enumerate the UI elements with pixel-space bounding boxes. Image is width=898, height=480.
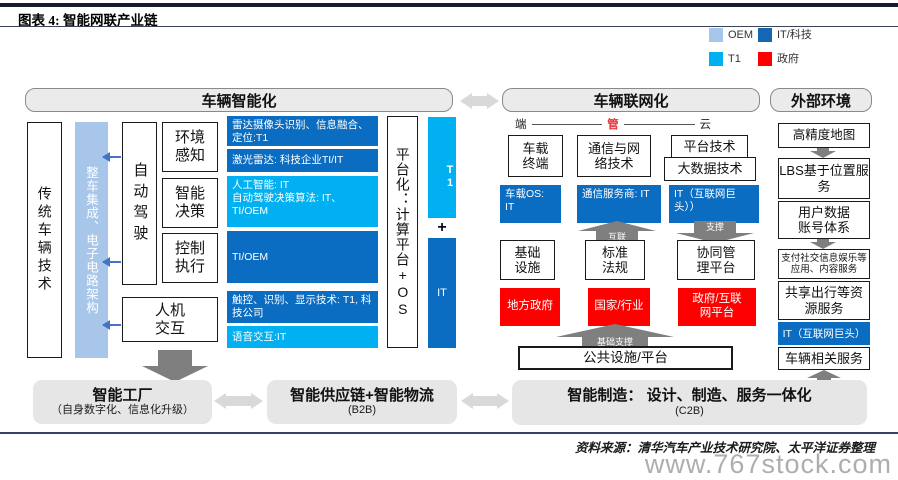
box-smart-supply-chain-title: 智能供应链+智能物流 [290,387,434,404]
box-smart-manufacturing-title: 智能制造： 设计、制造、服务一体化 [567,387,811,404]
box-t1-column: T1 [428,117,456,218]
box-platform-tech-label: 平台技术 [683,139,735,154]
header-vehicle-networking: 车辆联网化 [502,88,760,112]
arrow-left-icon [103,156,121,158]
legend-label-it: IT/科技 [777,28,812,42]
header-vehicle-intelligence-label: 车辆智能化 [201,90,276,111]
box-lidar-tech: 激光雷达: 科技企业TI/IT [227,149,378,172]
box-vehicle-os: 车载OS: IT [500,185,561,223]
box-vehicle-terminal-label: 车载终端 [523,141,549,172]
box-it-column: IT [428,238,456,348]
box-intelligent-decision-label: 智能决策 [175,185,205,220]
box-human-machine-interaction-label: 人机交互 [155,302,185,337]
box-autonomous-driving-label: 自动驾驶 [131,162,149,246]
arrow-down-icon [808,239,838,249]
pipe-label-yun: 云 [700,116,712,132]
box-ai-decision-tech: 人工智能: IT 自动驾驶决策算法: IT、TI/OEM [227,176,378,227]
box-local-government: 地方政府 [500,288,560,326]
legend-swatch-gov [758,52,772,66]
box-cooperative-management-platform: 协同管理平台 [677,240,755,280]
box-ai-decision-line2: 自动驾驶决策算法: IT、TI/OEM [232,192,373,218]
box-smart-manufacturing: 智能制造： 设计、制造、服务一体化 (C2B) [512,380,867,425]
box-smart-supply-chain-sub: (B2B) [348,404,376,417]
box-user-data-account: 用户数据账号体系 [778,201,870,239]
box-touch-display-tech-label: 触控、识别、显示技术: T1, 科技公司 [232,294,371,319]
box-it-giant-network: IT（互联网巨头）） [669,185,759,223]
box-environment-perception: 环境感知 [162,122,218,172]
box-communication-network-tech: 通信与网络技术 [577,135,651,177]
double-arrow-icon [461,391,509,411]
box-bigdata-tech-label: 大数据技术 [677,161,742,176]
box-it-column-label: IT [437,287,447,299]
box-public-facilities-platform: 公共设施/平台 [518,346,733,370]
header-vehicle-intelligence: 车辆智能化 [25,88,453,112]
box-platform-computing-os: 平台化：计算平台+OS [387,116,418,348]
arrow-up-base-support-icon: 基础支撑 [556,324,674,347]
box-lidar-tech-label: 激光雷达: 科技企业TI/IT [232,154,343,167]
box-national-industry-label: 国家/行业 [594,300,643,314]
box-platform-computing-os-label: 平台化：计算平台+OS [394,147,411,318]
plus-icon: + [428,220,456,236]
box-control-execution: 控制执行 [162,233,218,283]
title-underline [0,26,898,27]
box-it-giant-network-label: IT（互联网巨头）） [674,188,736,213]
box-lbs-service-label: LBS基于位置服务 [779,163,869,194]
plus-icon-label: + [437,219,446,237]
arrow-left-icon [103,324,121,326]
box-human-machine-interaction: 人机交互 [122,297,218,342]
box-shared-mobility: 共享出行等资源服务 [778,281,870,320]
legend-label-oem: OEM [728,28,753,42]
box-vehicle-related-service-label: 车辆相关服务 [785,351,863,366]
arrow-down-support-label: 支撑 [694,221,736,233]
box-intelligent-decision: 智能决策 [162,178,218,228]
box-carrier-label: 通信服务商: IT [582,188,650,200]
box-payment-social-content-label: 支付社交信息娱乐等应用、内容服务 [779,253,869,275]
legend-label-gov: 政府 [777,52,799,66]
box-public-facilities-platform-label: 公共设施/平台 [583,350,668,366]
box-ai-decision-line1: 人工智能: IT [232,179,373,192]
box-vehicle-terminal: 车载终端 [508,135,563,177]
box-national-industry: 国家/行业 [588,288,650,326]
box-smart-factory: 智能工厂 （自身数字化、信息化升级） [33,380,212,424]
top-rule [0,3,898,7]
box-t1-column-label: T1 [444,164,456,190]
pipe-label-guan: 管 [607,116,619,132]
box-autonomous-driving: 自动驾驶 [122,122,157,285]
box-user-data-account-label: 用户数据账号体系 [798,205,850,236]
header-external-environment-label: 外部环境 [791,90,851,111]
legend-swatch-t1 [709,52,723,66]
box-control-execution-label: 控制执行 [175,240,205,275]
box-bigdata-tech: 大数据技术 [664,157,756,181]
box-control-supplier-label: TI/OEM [232,251,268,264]
watermark: www.767stock.com [645,449,892,480]
box-infrastructure: 基础设施 [500,240,555,280]
arrow-down-icon [808,148,838,158]
box-vehicle-related-service: 车辆相关服务 [778,347,870,370]
box-smart-supply-chain: 智能供应链+智能物流 (B2B) [267,380,457,424]
box-standards-regulations-label: 标准法规 [602,245,628,276]
box-hd-map: 高精度地图 [778,123,870,148]
box-lbs-service: LBS基于位置服务 [778,158,870,199]
box-traditional-vehicle-tech-label: 传统车辆技术 [36,186,53,294]
box-control-supplier: TI/OEM [227,231,378,283]
box-platform-tech: 平台技术 [671,135,748,159]
header-external-environment: 外部环境 [770,88,872,112]
legend-swatch-oem [709,28,723,42]
box-government-internet-platform: 政府/互联网平台 [678,288,756,326]
legend-label-t1: T1 [728,52,741,66]
box-standards-regulations: 标准法规 [585,240,645,280]
double-arrow-icon [214,391,263,411]
box-touch-display-tech: 触控、识别、显示技术: T1, 科技公司 [227,291,378,323]
box-government-internet-platform-label: 政府/互联网平台 [688,293,746,321]
box-communication-network-tech-label: 通信与网络技术 [588,141,640,172]
box-smart-factory-sub: （自身数字化、信息化升级） [51,404,194,417]
legend-swatch-it [758,28,772,42]
box-infrastructure-label: 基础设施 [515,245,541,276]
arrow-left-icon [103,261,121,263]
box-it-giant-external-label: IT（互联网巨头） [783,326,866,341]
box-carrier: 通信服务商: IT [577,185,661,223]
box-voice-interaction-tech: 语音交互:IT [227,326,378,348]
box-smart-manufacturing-sub: (C2B) [675,405,704,418]
figure-canvas: 图表 4: 智能网联产业链 OEM IT/科技 T1 政府 车辆智能化 车辆联网… [0,0,898,480]
box-smart-factory-title: 智能工厂 [92,387,152,404]
box-hd-map-label: 高精度地图 [793,128,856,143]
box-radar-camera-tech: 雷达摄像头识别、信息融合、定位:T1 [227,116,378,146]
box-traditional-vehicle-tech: 传统车辆技术 [27,122,62,358]
box-it-giant-external: IT（互联网巨头） [778,322,870,345]
header-vehicle-networking-label: 车辆联网化 [593,90,668,111]
bottom-rule [0,432,898,434]
box-environment-perception-label: 环境感知 [175,129,205,164]
double-arrow-icon [460,92,499,109]
box-voice-interaction-tech-label: 语音交互:IT [232,331,286,344]
box-cooperative-management-platform-label: 协同管理平台 [697,245,736,276]
box-local-government-label: 地方政府 [507,300,553,314]
box-shared-mobility-label: 共享出行等资源服务 [779,285,869,316]
box-vehicle-integration-label: 整车集成、电子电路架构 [82,166,101,315]
box-radar-camera-tech-label: 雷达摄像头识别、信息融合、定位:T1 [232,119,369,144]
pipe-row: 端 管 云 [515,116,711,132]
pipe-label-duan: 端 [515,116,527,132]
arrow-down-icon [142,350,208,382]
box-payment-social-content: 支付社交信息娱乐等应用、内容服务 [778,249,870,279]
box-vehicle-os-label: 车载OS: IT [505,188,544,213]
